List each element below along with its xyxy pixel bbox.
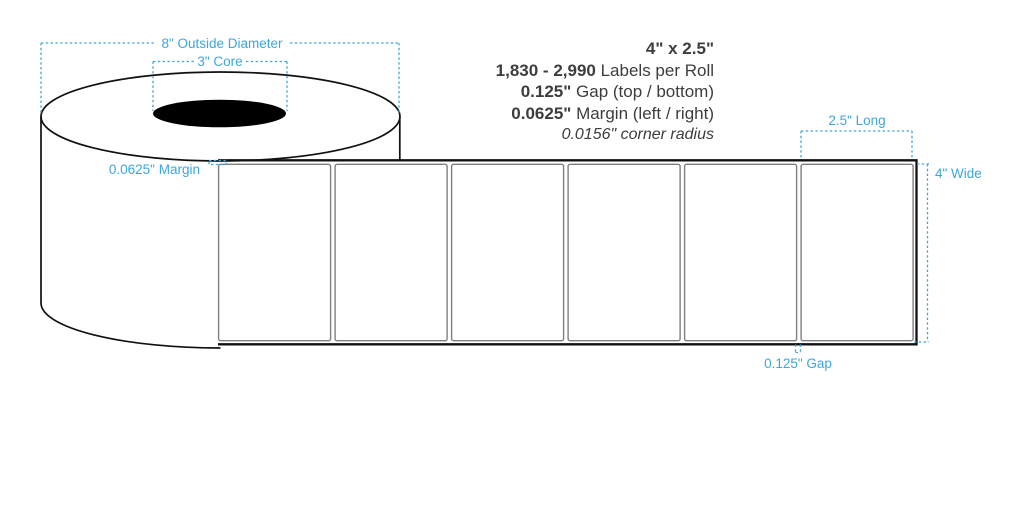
label-rect: [335, 164, 447, 340]
spec-margin: 0.0625" Margin (left / right): [496, 103, 714, 125]
label-rect: [568, 164, 680, 340]
label-rect: [219, 164, 331, 340]
label-rect: [801, 164, 913, 340]
label-roll-figure: [41, 72, 918, 348]
spec-corner-radius: 0.0156" corner radius: [496, 124, 714, 146]
outside-diameter-label: 8" Outside Diameter: [161, 36, 283, 51]
spec-margin-value: 0.0625": [511, 104, 571, 123]
spec-margin-text: Margin (left / right): [571, 104, 714, 123]
margin-annotation: 0.0625" Margin: [109, 161, 226, 178]
spec-gap: 0.125" Gap (top / bottom): [496, 81, 714, 103]
spec-labels-per-roll: 1,830 - 2,990 Labels per Roll: [496, 60, 714, 82]
label-rect: [452, 164, 564, 340]
spec-labels-text: Labels per Roll: [596, 61, 714, 80]
wide-label: 4" Wide: [935, 166, 982, 181]
wide-annotation: 4" Wide: [914, 164, 982, 342]
spec-text-block: 4" x 2.5" 1,830 - 2,990 Labels per Roll …: [496, 38, 714, 146]
long-annotation: 2.5" Long: [801, 113, 912, 158]
spec-gap-value: 0.125": [521, 82, 572, 101]
label-rect: [685, 164, 797, 340]
label-roll-diagram-page: 8" Outside Diameter 3" Core 0.0625" Marg…: [0, 0, 1024, 508]
gap-label: 0.125" Gap: [764, 356, 832, 371]
spec-size: 4" x 2.5": [496, 38, 714, 60]
core-label: 3" Core: [197, 54, 242, 69]
gap-annotation: 0.125" Gap: [764, 345, 832, 372]
margin-label: 0.0625" Margin: [109, 162, 200, 177]
spec-size-value: 4" x 2.5": [646, 39, 714, 58]
long-label: 2.5" Long: [828, 113, 885, 128]
spec-labels-value: 1,830 - 2,990: [496, 61, 596, 80]
roll-core-hole: [153, 100, 286, 128]
spec-gap-text: Gap (top / bottom): [571, 82, 714, 101]
